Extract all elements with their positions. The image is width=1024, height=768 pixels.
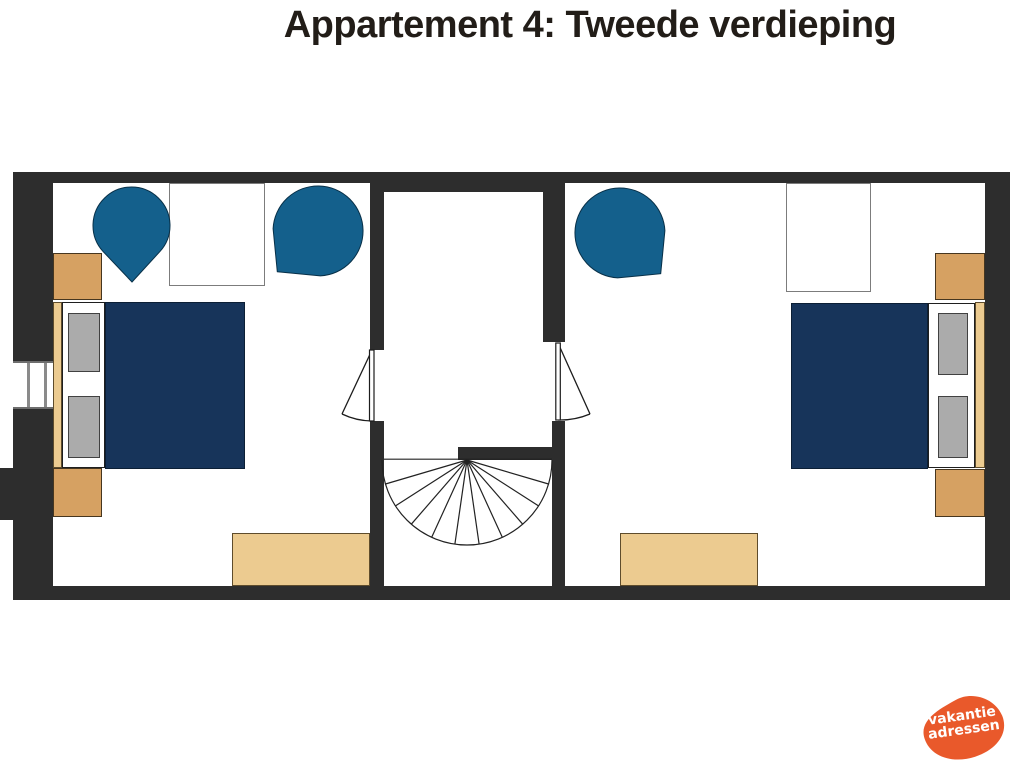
plan-symbols (0, 0, 1024, 768)
door-left-room (342, 350, 374, 421)
armchair-symbol-left-room-2 (273, 186, 363, 276)
door-right-room (556, 343, 590, 420)
armchair-symbol-right-room (575, 188, 665, 278)
armchair-symbol-left-room-1 (93, 187, 170, 282)
floor-plan-page: Appartement 4: Tweede verdieping (0, 0, 1024, 768)
staircase (382, 459, 552, 545)
vakantieadressen-logo: vakantie adressen (915, 688, 1011, 768)
